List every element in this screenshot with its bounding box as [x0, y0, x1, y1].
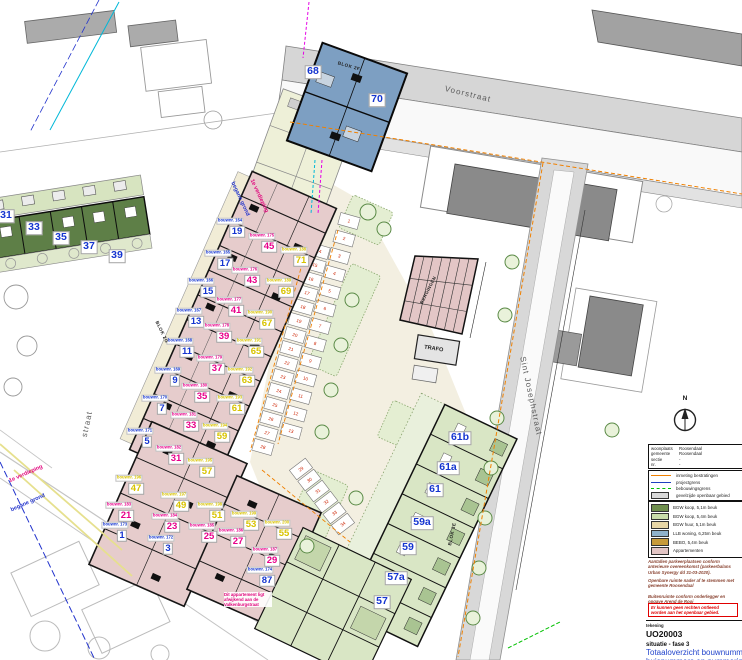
unit-number-15: 15 [200, 286, 216, 298]
bouwnr-label: bouwnr. 200 [263, 520, 290, 527]
bouwnr-label: bouwnr. 168 [166, 338, 193, 345]
house-number-31: 31 [0, 209, 14, 223]
house-number-37: 37 [81, 240, 98, 254]
unit-number-33: 33 [183, 420, 199, 432]
notes-block: Aantallen parkeerplaatsen conform anteri… [648, 559, 738, 605]
unit-number-27: 27 [230, 536, 246, 548]
legend-line-symbol [651, 482, 673, 483]
kadaster-value: Roosendaal [679, 451, 702, 456]
bouwnr-label: bouwnr. 169 [154, 367, 181, 374]
unit-number-61: 61 [229, 403, 245, 415]
house-number-33: 33 [26, 221, 43, 235]
unit-number-13: 13 [188, 316, 204, 328]
street-name-straat: straat [80, 410, 94, 438]
unit-number-63: 63 [239, 375, 255, 387]
bouwnr-label: bouwnr. 190 [246, 310, 273, 317]
unit-number-25: 25 [201, 531, 217, 543]
north-arrow-icon [670, 404, 700, 434]
legend-swatch [651, 521, 669, 529]
bouwnr-label: bouwnr. 180 [181, 383, 208, 390]
title-block: tekening UO20003 situatie - fase 3 Totaa… [646, 620, 742, 660]
legend-swatch-row: Appartementen [651, 546, 742, 555]
unit-number-65: 65 [248, 346, 264, 358]
legend-swatches: BGW koop, 5,1m beukBGW koop, 5,4m beukBG… [648, 501, 742, 558]
unit-number-7: 7 [157, 403, 167, 415]
unit-number-31: 31 [168, 453, 184, 465]
unit-number-67: 67 [259, 318, 275, 330]
legend-swatch-label: BGW huur, 5,1m beuk [673, 522, 716, 527]
bouwnr-label: bouwnr. 164 [216, 218, 243, 225]
unit-number-11: 11 [179, 346, 194, 358]
house-number-57a: 57a [385, 571, 408, 585]
blok-label: BLOK 3E [447, 522, 457, 546]
blok-label: BLOK 2F [337, 60, 361, 71]
legend-swatch [651, 547, 669, 555]
floor-label: 1e verdieping [249, 178, 270, 213]
house-number-68: 68 [305, 65, 322, 79]
legend-swatch-row: BGW koop, 5,1m beuk [651, 504, 742, 513]
unit-number-47: 47 [128, 483, 144, 495]
legend-swatch-label: BEBO, 5,4m beuk [673, 540, 708, 545]
legend-line-label: bebouwingsgrens [676, 486, 710, 491]
bouwnr-label: bouwnr. 172 [147, 535, 174, 542]
kadaster-value: - [679, 462, 680, 467]
unit-number-55: 55 [276, 528, 292, 540]
bouwnr-label: bouwnr. 189 [265, 278, 292, 285]
house-number-39: 39 [109, 249, 126, 263]
bouwnr-label: bouwnr. 176 [231, 267, 258, 274]
legend-swatch-label: Appartementen [673, 548, 703, 553]
bouwnr-label: bouwnr. 170 [141, 395, 168, 402]
house-number-35: 35 [53, 231, 70, 245]
unit-number-39: 39 [216, 331, 232, 343]
unit-number-43: 43 [244, 275, 260, 287]
bouwnr-label: bouwnr. 193 [216, 395, 243, 402]
note-public-space: Openbare ruimte nader af te stemmen met … [648, 578, 738, 589]
legend-line-symbol [651, 488, 673, 489]
street-name-voorstraat: Voorstraat [444, 84, 492, 104]
bouwnr-label: bouwnr. 177 [215, 297, 242, 304]
bouwnr-label: bouwnr. 195 [186, 458, 213, 465]
legend-swatch-label: LLB woning, 6,25m beuk [673, 531, 721, 536]
bouwnr-label: bouwnr. 181 [170, 412, 197, 419]
bouwnr-label: bouwnr. 198 [196, 502, 223, 509]
legend-line-row: gevelzijde openbaar gebied [651, 492, 742, 499]
bouwnr-label: bouwnr. 186 [217, 528, 244, 535]
house-number-61a: 61a [437, 461, 460, 475]
unit-number-23: 23 [164, 521, 180, 533]
legend-swatch [651, 538, 669, 546]
street-name-sint-josephstraat: Sint Josephstraat [518, 356, 544, 437]
bouwnr-label: bouwnr. 182 [155, 445, 182, 452]
unit-number-29: 29 [264, 555, 280, 567]
site-plan-sheet: 1234567891011121314151617181920212223242… [0, 0, 742, 660]
label-layer: Dit appartement ligt afwijkend aan de Va… [0, 0, 742, 660]
apartment-annotation: Dit appartement ligt afwijkend aan de Va… [224, 592, 272, 607]
bouwnr-label: bouwnr. 174 [246, 567, 273, 574]
bouwnr-label: bouwnr. 197 [160, 492, 187, 499]
kadaster-row: nr.- [651, 462, 742, 467]
legend-line-label: projectgrens [676, 480, 700, 485]
legend-line-row: inmeting bestratingen [651, 472, 742, 479]
blok-label: BLOK 2G [155, 320, 170, 344]
legend-line-label: inmeting bestratingen [676, 473, 718, 478]
legend-swatch [651, 513, 669, 521]
house-number-59: 59 [400, 541, 417, 555]
bouwnr-label: bouwnr. 166 [187, 278, 214, 285]
bouwnr-label: bouwnr. 171 [126, 428, 153, 435]
bouwnr-label: bouwnr. 196 [115, 475, 142, 482]
bergingen-label: BERGINGEN [419, 275, 437, 304]
house-number-57: 57 [374, 595, 391, 609]
bouwnr-label: bouwnr. 187 [251, 547, 278, 554]
tekening-label: tekening [646, 623, 742, 628]
bouwnr-label: bouwnr. 178 [203, 323, 230, 330]
unit-number-5: 5 [142, 436, 152, 448]
legend-swatch-row: LLB woning, 6,25m beuk [651, 529, 742, 538]
kadaster-info-box: woonplaatsRoosendaalgemeenteRoosendaalse… [648, 444, 742, 469]
legend-swatch-label: BGW koop, 5,4m beuk [673, 514, 717, 519]
unit-number-45: 45 [261, 241, 277, 253]
bouwnr-label: bouwnr. 192 [226, 367, 253, 374]
bouwnr-label: bouwnr. 165 [204, 250, 231, 257]
bouwnr-label: bouwnr. 175 [248, 233, 275, 240]
unit-number-51: 51 [209, 510, 225, 522]
legend-line-label: gevelzijde openbaar gebied [676, 493, 730, 498]
legend-swatch-row: BEBO, 5,4m beuk [651, 538, 742, 547]
note-parking: Aantallen parkeerplaatsen conform anteri… [648, 559, 738, 575]
bouwnr-label: bouwnr. 199 [230, 511, 257, 518]
house-number-59a: 59a [411, 516, 434, 530]
bouwnr-label: bouwnr. 191 [235, 338, 262, 345]
legend-swatch [651, 530, 669, 538]
unit-number-41: 41 [228, 305, 244, 317]
north-arrow: N [668, 396, 702, 436]
floor-label: begane grond [229, 181, 250, 217]
bouwnr-label: bouwnr. 173 [101, 522, 128, 529]
bouwnr-label: bouwnr. 167 [175, 308, 202, 315]
legend-line-symbol [651, 475, 673, 476]
floor-label: 1e verdieping [8, 464, 43, 484]
trafo-label: TRAFO [424, 345, 444, 354]
legend-swatch-row: BGW koop, 5,4m beuk [651, 512, 742, 521]
unit-number-9: 9 [170, 375, 180, 387]
unit-number-53: 53 [243, 519, 259, 531]
unit-number-71: 71 [293, 255, 309, 267]
unit-number-57: 57 [199, 466, 215, 478]
unit-number-35: 35 [194, 391, 210, 403]
house-number-61: 61 [427, 483, 444, 497]
unit-number-37: 37 [209, 363, 225, 375]
north-label: N [668, 396, 702, 403]
kadaster-label: nr. [651, 462, 679, 467]
unit-number-3: 3 [163, 543, 173, 555]
drawing-title-line1: Totaaloverzicht bouwnummers, [646, 648, 742, 657]
bouwnr-label: bouwnr. 188 [280, 247, 307, 254]
unit-number-69: 69 [278, 286, 294, 298]
house-number-61b: 61b [448, 431, 471, 445]
house-number-70: 70 [369, 93, 386, 107]
legend-box-symbol [651, 492, 673, 499]
legend-swatch-row: BGW huur, 5,1m beuk [651, 521, 742, 530]
unit-number-1: 1 [117, 530, 127, 542]
bouwnr-label: bouwnr. 183 [105, 502, 132, 509]
drawing-number: UO20003 [646, 629, 742, 639]
bouwnr-label: bouwnr. 184 [151, 513, 178, 520]
unit-number-21: 21 [118, 510, 134, 522]
unit-number-49: 49 [173, 500, 189, 512]
legend-line-row: projectgrens [651, 479, 742, 486]
unit-number-59: 59 [214, 431, 230, 443]
unit-number-19: 19 [229, 226, 245, 238]
legend-swatch-label: BGW koop, 5,1m beuk [673, 505, 717, 510]
floor-label: begane grond [10, 493, 46, 514]
legend-line-symbols: inmeting bestratingenprojectgrensbebouwi… [648, 470, 742, 501]
warning-box: Er kunnen geen rechten ontleend worden a… [648, 603, 738, 617]
bouwnr-label: bouwnr. 194 [201, 423, 228, 430]
legend-swatch [651, 504, 669, 512]
bouwnr-label: bouwnr. 179 [196, 355, 223, 362]
unit-number-87: 87 [259, 575, 275, 587]
bouwnr-label: bouwnr. 185 [188, 523, 215, 530]
